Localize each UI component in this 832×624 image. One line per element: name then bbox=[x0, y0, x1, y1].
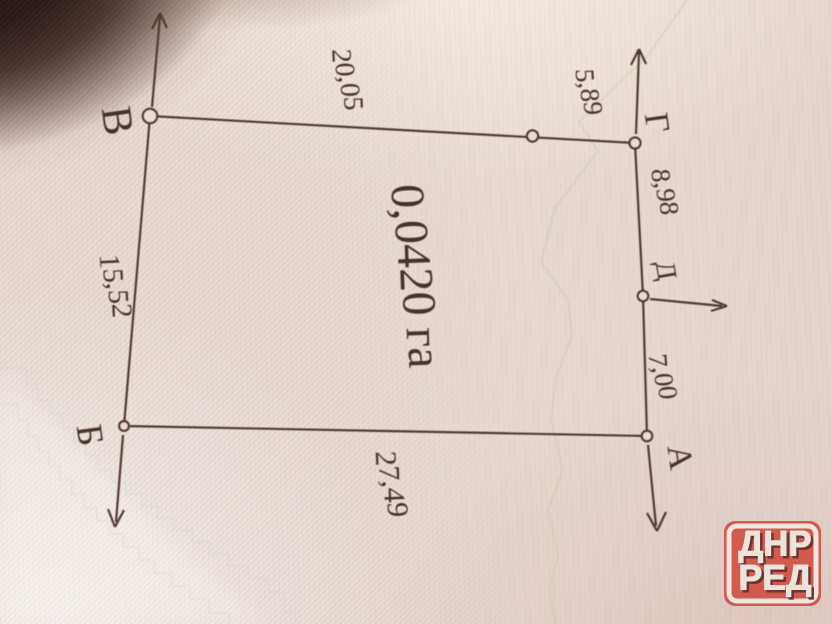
svg-text:0,0420 га: 0,0420 га bbox=[379, 180, 453, 373]
svg-text:Б: Б bbox=[68, 422, 112, 449]
svg-text:В: В bbox=[92, 103, 143, 138]
svg-text:20,05: 20,05 bbox=[322, 42, 371, 117]
svg-text:27,49: 27,49 bbox=[366, 444, 417, 524]
svg-text:Г: Г bbox=[637, 110, 676, 135]
svg-text:5,89: 5,89 bbox=[567, 62, 611, 121]
svg-text:15,52: 15,52 bbox=[90, 247, 140, 324]
svg-text:РЕД: РЕД bbox=[739, 559, 812, 598]
svg-text:Д: Д bbox=[649, 258, 683, 282]
svg-text:8,98: 8,98 bbox=[643, 162, 687, 221]
svg-text:А: А bbox=[659, 443, 699, 473]
